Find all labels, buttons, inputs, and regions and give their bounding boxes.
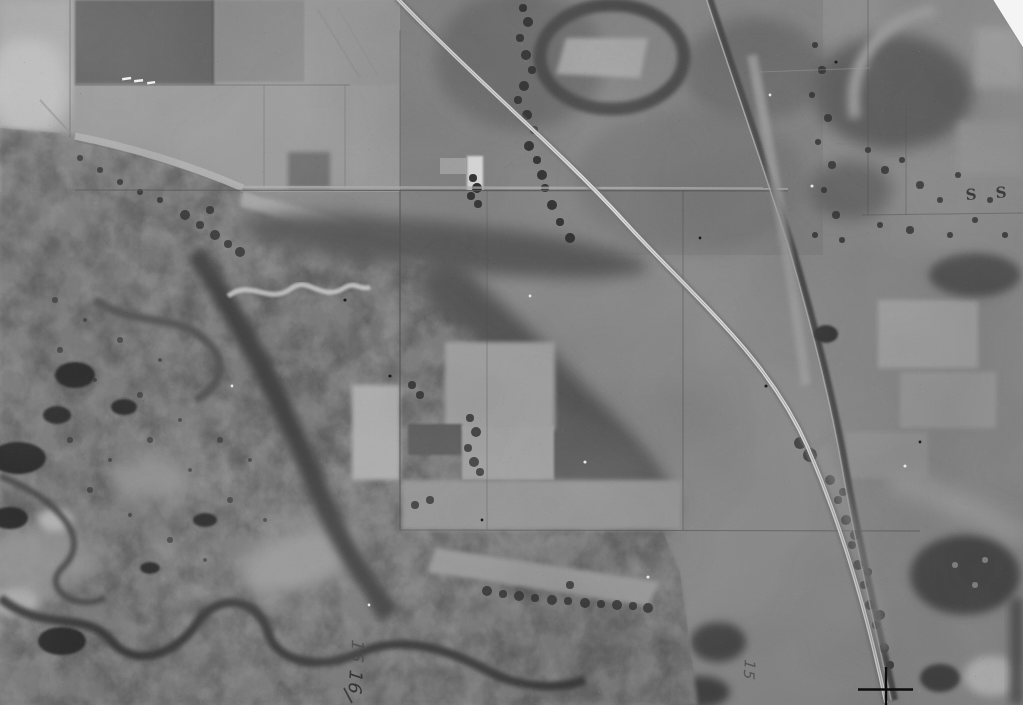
aerial-photo-canvas: 16 16 15 S S bbox=[0, 0, 1023, 705]
handwritten-section-number-15: 15 bbox=[740, 658, 759, 681]
handwritten-section-number-16-upper: 16 bbox=[347, 638, 368, 662]
handwritten-section-number-16-lower: 16 bbox=[344, 668, 367, 695]
texture-overlays bbox=[0, 0, 1023, 705]
handwritten-margin-mark: S S bbox=[965, 183, 1014, 204]
aerial-photo: 16 16 15 S S bbox=[0, 0, 1023, 705]
